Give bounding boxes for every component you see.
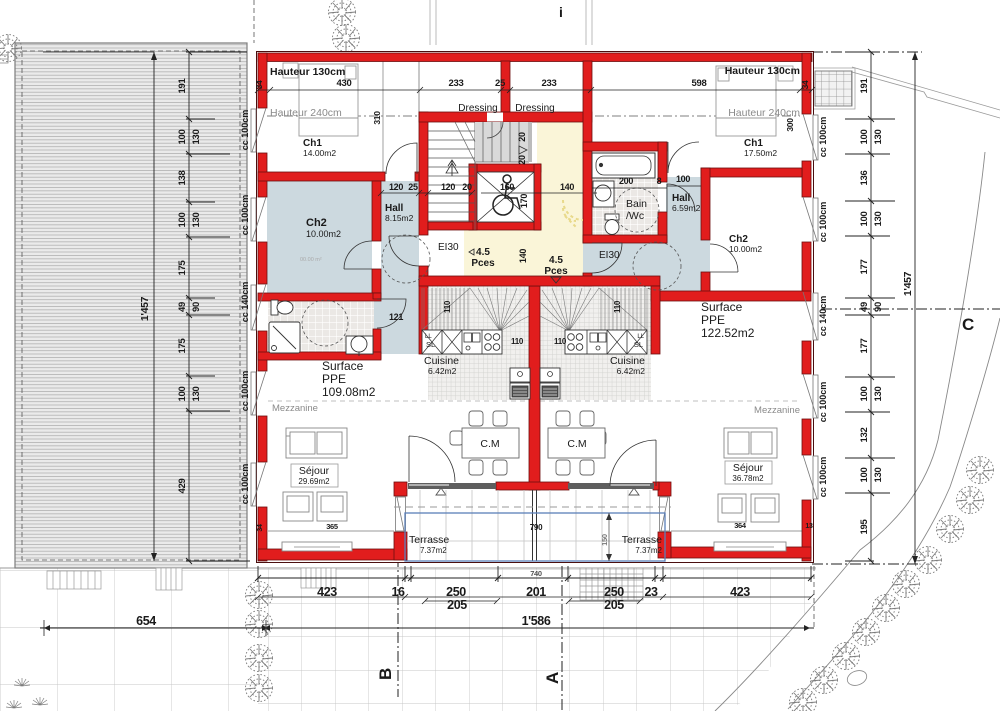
svg-text:195: 195 — [859, 519, 870, 535]
svg-text:7.37m2: 7.37m2 — [635, 546, 662, 555]
svg-text:Terrasse: Terrasse — [409, 534, 449, 546]
svg-text:310: 310 — [372, 111, 382, 125]
svg-text:110: 110 — [613, 300, 622, 313]
svg-text:Mezzanine: Mezzanine — [272, 403, 318, 414]
svg-text:233: 233 — [542, 78, 557, 89]
svg-text:120: 120 — [389, 182, 403, 192]
svg-text:136: 136 — [859, 171, 870, 186]
svg-text:177: 177 — [859, 339, 870, 354]
svg-text:90: 90 — [873, 302, 884, 312]
svg-text:121: 121 — [389, 312, 403, 322]
svg-text:7.37m2: 7.37m2 — [420, 546, 447, 555]
svg-text:365: 365 — [326, 522, 338, 531]
svg-text:300: 300 — [785, 118, 795, 132]
svg-text:C.M: C.M — [480, 438, 499, 450]
svg-text:6.42m2: 6.42m2 — [428, 366, 457, 376]
svg-text:20: 20 — [517, 132, 527, 142]
svg-text:109.08m2: 109.08m2 — [322, 385, 376, 399]
svg-text:100: 100 — [859, 468, 870, 483]
svg-text:100: 100 — [177, 213, 188, 228]
svg-text:Hauteur 130cm: Hauteur 130cm — [725, 65, 800, 77]
svg-text:cc 100cm: cc 100cm — [240, 110, 250, 151]
svg-text:130: 130 — [191, 130, 202, 145]
svg-text:4.5: 4.5 — [549, 255, 563, 266]
svg-text:Séjour: Séjour — [299, 465, 330, 477]
svg-text:PPE: PPE — [322, 372, 346, 386]
svg-text:cc 100cm: cc 100cm — [818, 117, 828, 158]
svg-text:SL: SL — [634, 340, 643, 349]
svg-text:Ch2: Ch2 — [306, 217, 327, 229]
svg-text:654: 654 — [136, 614, 156, 628]
svg-text:PPE: PPE — [701, 313, 725, 327]
svg-text:8.15m2: 8.15m2 — [385, 213, 414, 223]
svg-text:740: 740 — [530, 569, 542, 578]
svg-text:36.78m2: 36.78m2 — [732, 474, 764, 483]
svg-text:20: 20 — [517, 155, 527, 165]
svg-text:cc 100cm: cc 100cm — [818, 202, 828, 243]
svg-text:100: 100 — [859, 387, 870, 402]
svg-text:90: 90 — [191, 302, 202, 312]
svg-text:191: 191 — [859, 78, 870, 94]
svg-text:205: 205 — [604, 598, 624, 612]
svg-text:Hauteur 130cm: Hauteur 130cm — [270, 66, 345, 78]
svg-text:1'586: 1'586 — [522, 614, 551, 628]
svg-text:SL: SL — [426, 340, 435, 349]
svg-text:100: 100 — [177, 130, 188, 145]
svg-text:130: 130 — [191, 387, 202, 402]
svg-text:Terrasse: Terrasse — [622, 534, 662, 546]
svg-text:17.50m2: 17.50m2 — [744, 148, 777, 158]
svg-text:177: 177 — [859, 260, 870, 275]
svg-text:cc 140cm: cc 140cm — [240, 282, 250, 323]
svg-text:130: 130 — [873, 212, 884, 227]
svg-text:6.59m2: 6.59m2 — [672, 203, 701, 213]
svg-text:10.00m2: 10.00m2 — [729, 244, 762, 254]
svg-text:25: 25 — [408, 182, 418, 192]
svg-text:00.00 m²: 00.00 m² — [300, 257, 322, 263]
svg-text:233: 233 — [449, 78, 464, 89]
svg-text:130: 130 — [873, 468, 884, 483]
svg-text:132: 132 — [859, 428, 870, 443]
svg-text:34: 34 — [257, 524, 264, 532]
svg-text:B: B — [376, 668, 395, 680]
svg-text:130: 130 — [873, 387, 884, 402]
svg-text:175: 175 — [177, 260, 188, 276]
svg-text:140: 140 — [518, 249, 528, 263]
svg-text:150: 150 — [600, 534, 609, 546]
svg-text:790: 790 — [530, 523, 543, 532]
svg-text:Hauteur 240cm: Hauteur 240cm — [728, 107, 800, 119]
svg-text:34: 34 — [254, 80, 264, 89]
svg-text:A: A — [543, 672, 562, 684]
svg-text:100: 100 — [676, 174, 690, 184]
svg-text:Surface: Surface — [701, 300, 743, 314]
svg-text:cc 100cm: cc 100cm — [818, 382, 828, 423]
svg-text:Dressing: Dressing — [458, 103, 497, 114]
svg-text:364: 364 — [734, 521, 747, 530]
svg-text:cc 100cm: cc 100cm — [240, 464, 250, 505]
svg-text:122.52m2: 122.52m2 — [701, 326, 755, 340]
svg-text:191: 191 — [177, 78, 188, 94]
svg-text:29.69m2: 29.69m2 — [298, 477, 330, 486]
svg-text:Séjour: Séjour — [733, 462, 764, 474]
svg-text:C: C — [962, 315, 974, 334]
svg-text:49: 49 — [859, 302, 870, 312]
svg-text:25: 25 — [495, 78, 506, 89]
svg-text:140: 140 — [560, 182, 574, 192]
svg-text:110: 110 — [554, 337, 567, 346]
svg-text:Dressing: Dressing — [515, 103, 554, 114]
svg-text:C.M: C.M — [567, 438, 586, 450]
svg-text:110: 110 — [443, 300, 452, 313]
svg-text:100: 100 — [859, 212, 870, 227]
svg-text:Bain: Bain — [626, 198, 647, 210]
svg-text:8: 8 — [657, 176, 662, 186]
svg-text:100: 100 — [177, 387, 188, 402]
svg-text:130: 130 — [873, 130, 884, 145]
svg-text:170: 170 — [519, 194, 529, 208]
svg-text:13: 13 — [805, 523, 813, 530]
svg-text:4.5: 4.5 — [476, 247, 490, 258]
svg-text:cc 100cm: cc 100cm — [818, 457, 828, 498]
svg-text:160: 160 — [500, 182, 514, 192]
svg-text:120: 120 — [441, 182, 455, 192]
svg-text:6.42m2: 6.42m2 — [617, 366, 646, 376]
svg-text:/Wc: /Wc — [626, 210, 644, 222]
svg-text:i: i — [559, 4, 563, 20]
svg-text:Mezzanine: Mezzanine — [754, 405, 800, 416]
svg-text:49: 49 — [177, 302, 188, 312]
svg-text:14.00m2: 14.00m2 — [303, 148, 336, 158]
svg-text:Pces: Pces — [544, 266, 568, 277]
svg-text:EI30: EI30 — [599, 250, 620, 261]
svg-text:175: 175 — [177, 338, 188, 354]
svg-text:10.00m2: 10.00m2 — [306, 229, 341, 239]
svg-text:598: 598 — [692, 78, 707, 89]
svg-text:1'457: 1'457 — [139, 296, 151, 321]
svg-text:110: 110 — [511, 337, 524, 346]
svg-text:cc 100cm: cc 100cm — [240, 195, 250, 236]
svg-text:cc 140cm: cc 140cm — [818, 296, 828, 337]
svg-text:429: 429 — [177, 479, 188, 494]
svg-text:20: 20 — [462, 182, 472, 192]
svg-text:138: 138 — [177, 171, 188, 186]
svg-text:205: 205 — [447, 598, 467, 612]
svg-text:Pces: Pces — [471, 258, 495, 269]
svg-text:cc 100cm: cc 100cm — [240, 371, 250, 412]
svg-text:Surface: Surface — [322, 359, 364, 373]
svg-text:430: 430 — [337, 78, 352, 89]
svg-text:Hauteur 240cm: Hauteur 240cm — [270, 107, 342, 119]
svg-text:1'457: 1'457 — [902, 271, 914, 296]
svg-text:EI30: EI30 — [438, 242, 459, 253]
svg-text:34: 34 — [800, 80, 810, 89]
svg-text:100: 100 — [859, 130, 870, 145]
svg-text:200: 200 — [619, 176, 633, 186]
svg-text:130: 130 — [191, 213, 202, 228]
